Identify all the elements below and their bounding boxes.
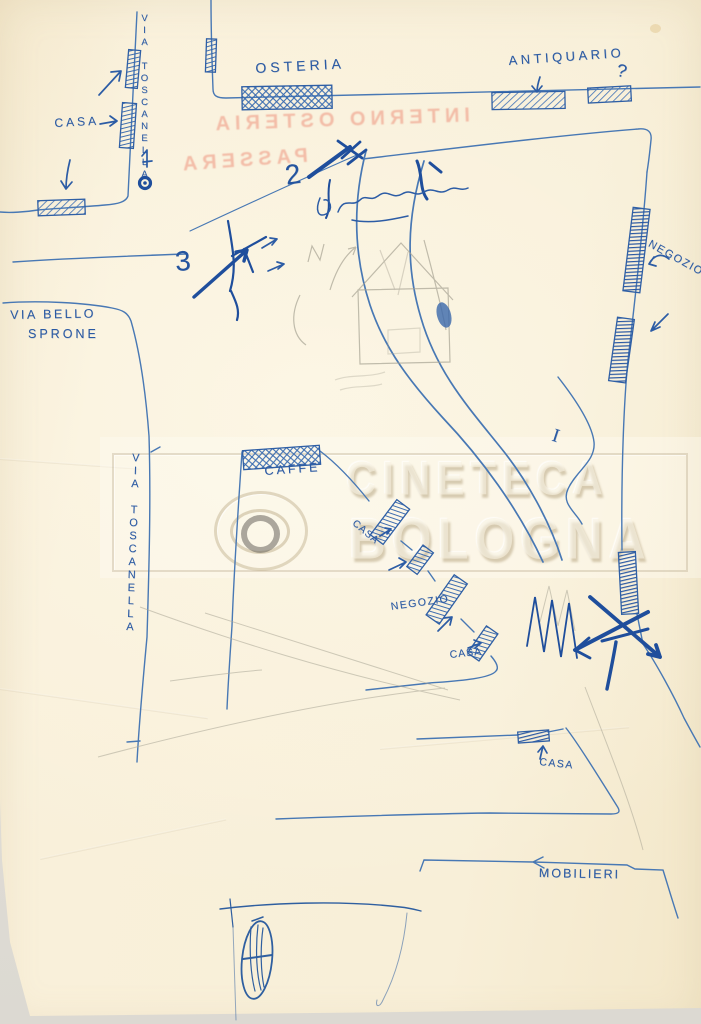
- arrow-antiquario-icon: [532, 77, 542, 92]
- label-number-3: 3: [174, 245, 192, 278]
- label-sprone: SPRONE: [28, 327, 99, 341]
- ink-blot: [434, 301, 454, 330]
- building-antiquario-1: [492, 91, 565, 109]
- street-thin-diagonal: [190, 151, 366, 231]
- arrow-right-lower-icon: [651, 314, 668, 331]
- building-casa-bottom-left: [38, 199, 85, 216]
- street-bottom-block: [276, 728, 619, 819]
- arrow-down-icon: [61, 160, 72, 189]
- street-caffe-vertical: [151, 447, 242, 709]
- street-second-horizontal: [363, 129, 651, 172]
- street-lines: [0, 0, 700, 918]
- street-top-horizontal: [211, 0, 700, 98]
- label-casa-top: CASA: [54, 114, 99, 130]
- street-left-stub: [13, 254, 186, 262]
- street-right-curve: [643, 644, 700, 747]
- bottom-sketch: [220, 899, 421, 1020]
- k-arrow-2-icon: [268, 262, 284, 271]
- arrow-up-right-icon: [99, 71, 121, 95]
- building-casa-bottom: [518, 730, 550, 743]
- building-osteria: [242, 85, 332, 110]
- label-mobilieri: MOBILIERI: [539, 866, 620, 881]
- annotation-arrows: [61, 71, 669, 759]
- building-antiquario-2: [588, 86, 632, 103]
- cursive-scribble: [318, 188, 468, 222]
- pencil-lines: [98, 586, 643, 850]
- road-curve-right: [410, 161, 562, 560]
- heavy-arrow-cluster: [527, 597, 660, 689]
- scanned-map-page: { "page": { "colors": { "paper": "#f8efd…: [0, 0, 701, 1024]
- label-via-toscanella-top: VIA TOSCANELLA: [139, 13, 150, 143]
- arrow-casa-top-icon: [100, 116, 117, 126]
- building-right-3: [618, 552, 638, 615]
- street-wavy: [558, 377, 594, 524]
- central-scribbles: [194, 141, 441, 320]
- street-via-toscanella-top: [0, 12, 137, 212]
- arrow-chain-small-icon: [389, 558, 406, 570]
- building-negozio-right-2: [609, 317, 635, 383]
- building-toscanella-casa: [119, 103, 136, 149]
- building-negozio-right-1: [623, 207, 650, 292]
- label-via-bello: VIA BELLO: [10, 307, 96, 322]
- k-arrow-1-icon: [262, 238, 277, 248]
- building-top-mid: [205, 39, 216, 72]
